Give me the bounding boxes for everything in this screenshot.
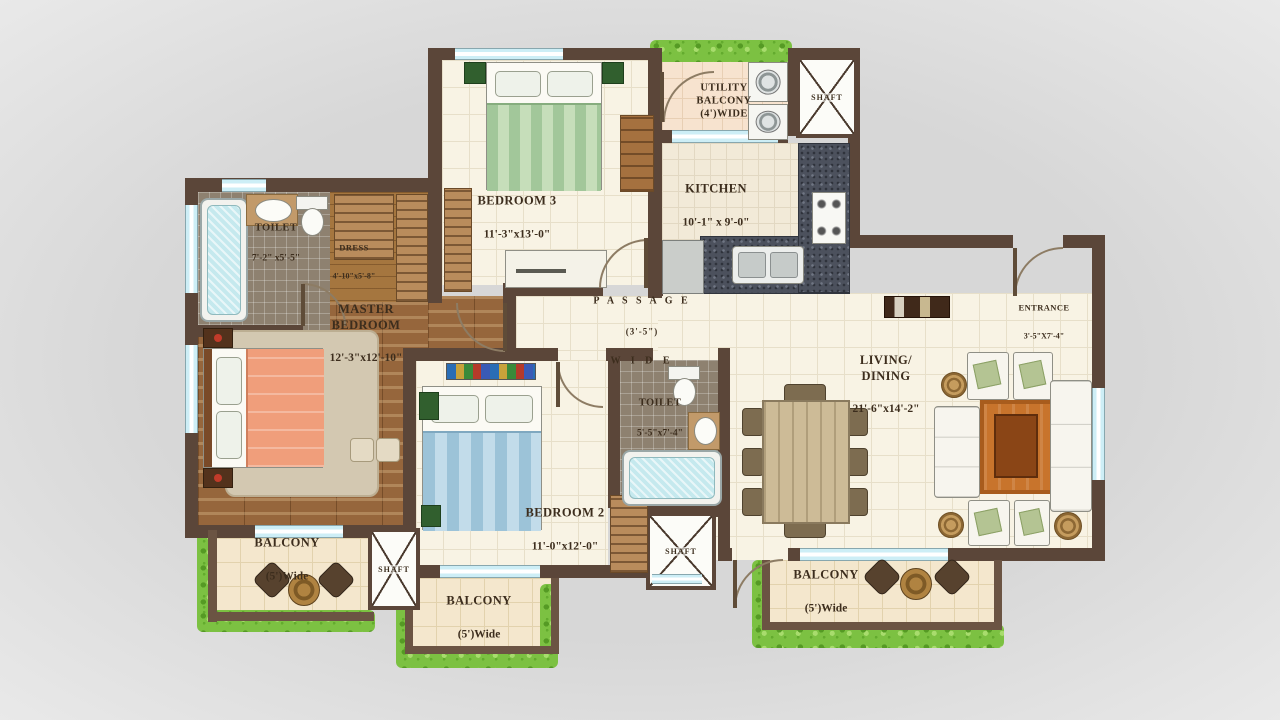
room-name: MASTER BEDROOM bbox=[330, 302, 403, 333]
label-toilet2: TOILET 5'-5"x7'-4" bbox=[637, 378, 683, 457]
room-name: ENTRANCE bbox=[1019, 302, 1070, 313]
dining-chair bbox=[742, 408, 764, 436]
window bbox=[222, 179, 266, 192]
blanket bbox=[246, 349, 324, 467]
room-dims: 10'-1" x 9'-0" bbox=[682, 215, 749, 230]
room-name: TOILET bbox=[252, 221, 300, 234]
room-name: UTILITY BALCONY (4')WIDE bbox=[696, 81, 751, 120]
shaft-label: SHAFT bbox=[811, 93, 843, 102]
master-bench bbox=[376, 438, 400, 462]
room-dims-wide: W I D E bbox=[593, 356, 690, 367]
pillow bbox=[216, 357, 242, 405]
pillow bbox=[216, 411, 242, 459]
floor-plan: SHAFT SHAFT SHAFT bbox=[0, 0, 1280, 720]
label-toilet1: TOILET 7'-2" x5'-5" bbox=[252, 203, 300, 282]
room-dims: 11'-0"x12'-0" bbox=[526, 539, 605, 554]
bedroom2-wardrobe bbox=[610, 495, 648, 573]
room-name: BALCONY bbox=[254, 536, 319, 552]
room-name: BALCONY bbox=[446, 594, 511, 610]
window bbox=[185, 345, 198, 433]
bedroom2-unit-left bbox=[419, 392, 439, 420]
planter-utility-top bbox=[650, 40, 792, 62]
bedroom3-wardrobe bbox=[444, 188, 472, 292]
room-dims: 4'-10"x5'-8" bbox=[333, 271, 376, 281]
living-sofa-left bbox=[934, 406, 980, 498]
dining-chair bbox=[742, 448, 764, 476]
window bbox=[455, 48, 563, 60]
toilet2-washbasin bbox=[688, 412, 720, 450]
living-sofa-right bbox=[1050, 380, 1092, 512]
label-balcony-left: BALCONY (5')Wide bbox=[254, 518, 319, 603]
parapet bbox=[208, 612, 374, 621]
dining-chair bbox=[742, 488, 764, 516]
label-utility-balcony: UTILITY BALCONY (4')WIDE bbox=[696, 63, 751, 138]
parapet bbox=[551, 578, 559, 654]
label-bedroom2: BEDROOM 2 11'-0"x12'-0" bbox=[526, 488, 605, 573]
room-name: BEDROOM 3 bbox=[478, 194, 557, 210]
label-entrance: ENTRANCE 3'-5"X7'-4" bbox=[1019, 284, 1070, 359]
pouf bbox=[941, 372, 967, 398]
pouf bbox=[938, 512, 964, 538]
bedroom3-nightstand-left bbox=[464, 62, 486, 84]
headboard bbox=[204, 349, 212, 467]
room-dims: 3'-5"X7'-4" bbox=[1019, 331, 1070, 341]
kitchen-stove bbox=[812, 192, 846, 244]
toilet1-wc bbox=[296, 196, 326, 238]
pouf bbox=[1054, 512, 1082, 540]
room-dims: (3'-5") bbox=[593, 326, 690, 338]
bedroom3-nightstand-right bbox=[602, 62, 624, 84]
bedroom2-shelf-strip bbox=[446, 363, 536, 380]
room-dims: (5')Wide bbox=[793, 601, 858, 616]
utility-washing-machine bbox=[748, 104, 788, 140]
bedroom3-bed bbox=[486, 62, 602, 190]
label-passage: P A S S A G E (3'-5") W I D E bbox=[593, 277, 690, 384]
shaft-top-right: SHAFT bbox=[796, 56, 858, 138]
room-dims: 11'-3"x13'-0" bbox=[478, 227, 557, 242]
room-dims: 12'-3"x12'-10" bbox=[330, 351, 403, 366]
label-living-dining: LIVING/ DINING 21'-6"x14'-2" bbox=[852, 335, 919, 435]
room-name: P A S S A G E bbox=[593, 295, 690, 308]
parapet bbox=[994, 560, 1002, 630]
room-name: TOILET bbox=[637, 396, 683, 409]
utility-washing-machine bbox=[748, 62, 788, 102]
room-dims: (5')Wide bbox=[254, 569, 319, 584]
kitchen-sink bbox=[732, 246, 804, 284]
label-balcony-right: BALCONY (5')Wide bbox=[793, 550, 858, 635]
label-balcony-mid: BALCONY (5')Wide bbox=[446, 576, 511, 661]
room-name: KITCHEN bbox=[682, 182, 749, 198]
master-nightstand-bottom bbox=[203, 468, 233, 488]
pillow bbox=[547, 71, 593, 97]
window bbox=[185, 205, 198, 293]
room-dims: 5'-5"x7'-4" bbox=[637, 427, 683, 439]
room-name: BALCONY bbox=[793, 568, 858, 584]
toilet2-bathtub bbox=[622, 450, 722, 506]
label-kitchen: KITCHEN 10'-1" x 9'-0" bbox=[682, 164, 749, 249]
wall bbox=[428, 48, 442, 303]
label-bedroom3: BEDROOM 3 11'-3"x13'-0" bbox=[478, 176, 557, 261]
master-bench bbox=[350, 438, 374, 462]
bedroom2-unit-bottom bbox=[421, 505, 441, 527]
bedroom3-shelf-unit bbox=[620, 115, 654, 192]
coffee-table bbox=[994, 414, 1038, 478]
master-bed bbox=[203, 348, 323, 468]
balcony-table bbox=[900, 568, 932, 600]
wall bbox=[848, 235, 1013, 248]
room-name: DRESS bbox=[333, 242, 376, 253]
pillow bbox=[495, 71, 541, 97]
pillow bbox=[485, 395, 533, 423]
room-name: LIVING/ DINING bbox=[852, 353, 919, 384]
room-dims: 21'-6"x14'-2" bbox=[852, 402, 919, 417]
dining-table bbox=[762, 400, 850, 524]
parapet bbox=[208, 530, 217, 622]
toilet1-bathtub bbox=[200, 198, 248, 322]
room-dims: (5')Wide bbox=[446, 627, 511, 642]
living-armchair bbox=[1014, 500, 1050, 546]
living-armchair bbox=[968, 500, 1010, 546]
room-dims: 7'-2" x5'-5" bbox=[252, 252, 300, 264]
label-master-bedroom: MASTER BEDROOM 12'-3"x12'-10" bbox=[330, 284, 403, 384]
shaft-label: SHAFT bbox=[378, 565, 410, 574]
room-name: BEDROOM 2 bbox=[526, 506, 605, 522]
living-armchair bbox=[967, 352, 1009, 400]
shaft-left: SHAFT bbox=[368, 528, 420, 610]
parapet bbox=[762, 560, 770, 630]
wall bbox=[403, 348, 558, 361]
entry-console bbox=[884, 296, 950, 318]
master-nightstand-top bbox=[203, 328, 233, 348]
window bbox=[652, 574, 702, 584]
shaft-label: SHAFT bbox=[665, 547, 697, 556]
window bbox=[1092, 388, 1105, 480]
